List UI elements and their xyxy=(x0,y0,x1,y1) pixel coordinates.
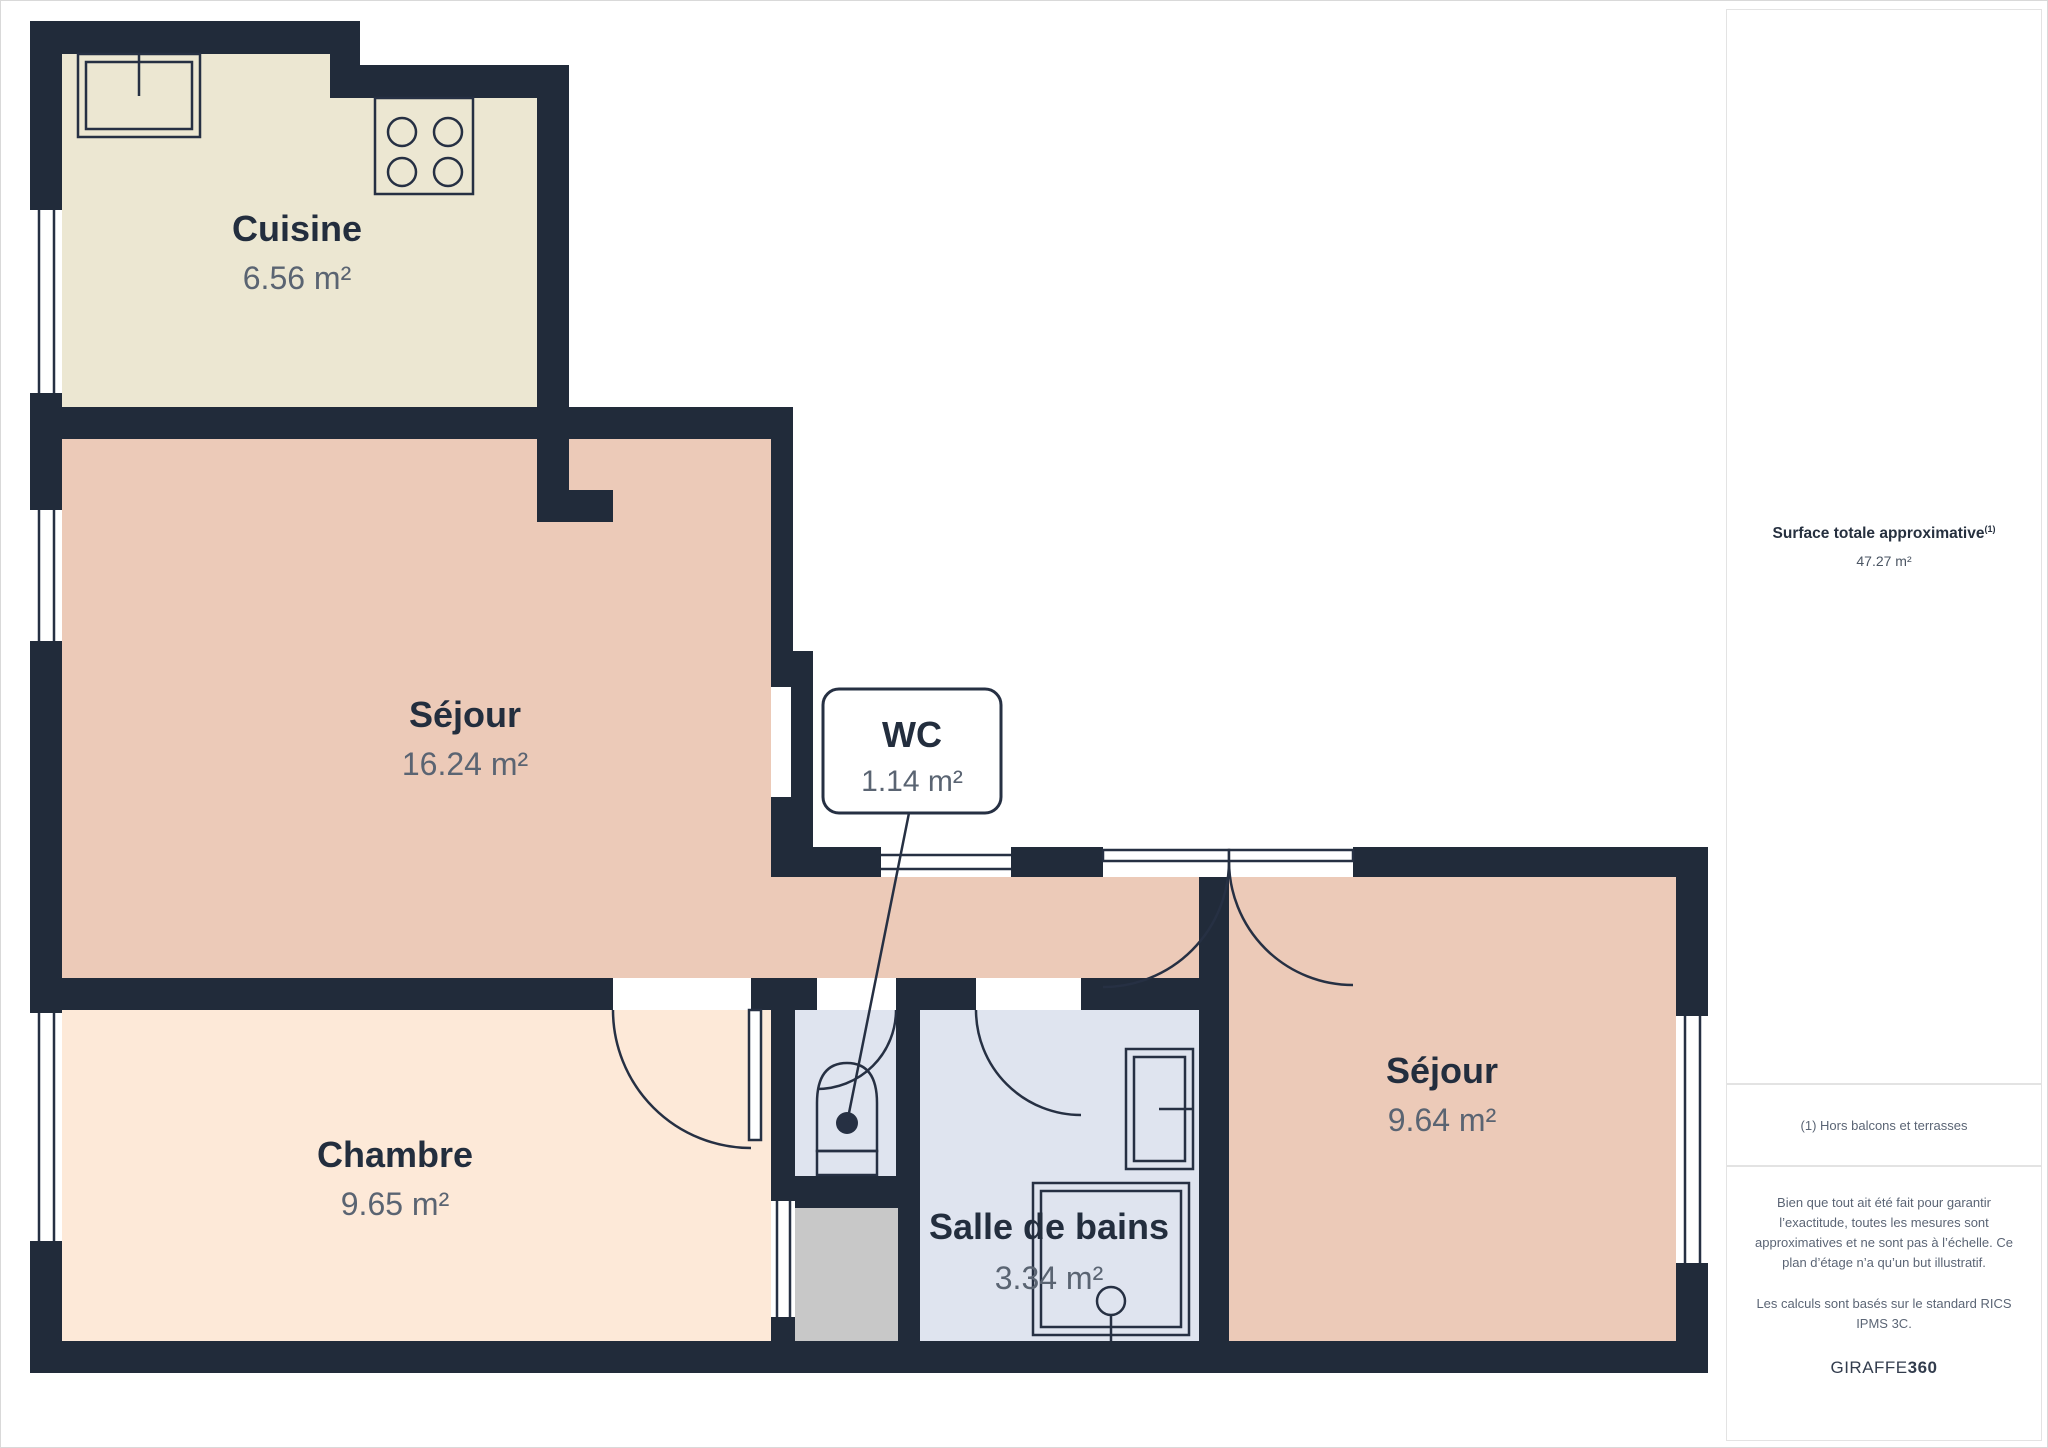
window-kitchen xyxy=(30,210,62,393)
vestibule xyxy=(795,1208,898,1341)
room-area-sejour-right: 9.64 m² xyxy=(1388,1102,1497,1138)
room-area-cuisine: 6.56 m² xyxy=(243,260,352,296)
window-chambre xyxy=(30,1013,62,1241)
brand-name: GIRAFFE xyxy=(1830,1358,1907,1377)
total-area-card: Surface totale approximative(1) 47.27 m² xyxy=(1726,9,2042,1084)
room-area-sejour-central: 16.24 m² xyxy=(402,746,529,782)
footnote-text: (1) Hors balcons et terrasses xyxy=(1801,1118,1968,1133)
room-name-cuisine: Cuisine xyxy=(232,208,362,249)
window-sejour xyxy=(30,510,62,641)
disclaimer-card: Bien que tout ait été fait pour garantir… xyxy=(1726,1166,2042,1441)
total-area-footnote-marker: (1) xyxy=(1984,524,1995,534)
disclaimer-paragraph-2: Les calculs sont basés sur le standard R… xyxy=(1751,1294,2017,1334)
total-area-value: 47.27 m² xyxy=(1856,553,1911,569)
room-area-wc: 1.14 m² xyxy=(861,765,963,798)
brand-suffix: 360 xyxy=(1908,1358,1938,1377)
giraffe360-logo: GIRAFFE360 xyxy=(1830,1358,1937,1378)
sink-icon xyxy=(78,54,200,137)
room-name-salle-de-bains: Salle de bains xyxy=(929,1206,1169,1247)
room-area-chambre: 9.65 m² xyxy=(341,1186,450,1222)
room-name-chambre: Chambre xyxy=(317,1134,473,1175)
hallway xyxy=(771,877,1199,978)
window-sejour-right xyxy=(1676,1016,1708,1263)
room-area-salle-de-bains: 3.34 m² xyxy=(995,1260,1104,1296)
disclaimer-paragraph-1: Bien que tout ait été fait pour garantir… xyxy=(1751,1193,2017,1274)
door-vestibule xyxy=(771,1201,795,1317)
room-chambre xyxy=(47,1010,771,1341)
total-area-label: Surface totale approximative(1) xyxy=(1773,524,1996,543)
floorplan-page: WC 1.14 m² Cuisine 6.56 m² Séjour 16.24 … xyxy=(0,0,2048,1448)
stove-icon xyxy=(375,98,473,194)
footnote-card: (1) Hors balcons et terrasses xyxy=(1726,1084,2042,1166)
total-area-label-text: Surface totale approximative xyxy=(1773,525,1985,542)
floorplan-drawing: WC 1.14 m² Cuisine 6.56 m² Séjour 16.24 … xyxy=(1,1,1731,1448)
room-name-sejour-central: Séjour xyxy=(409,694,521,735)
room-name-sejour-right: Séjour xyxy=(1386,1050,1498,1091)
room-name-wc: WC xyxy=(882,714,942,755)
